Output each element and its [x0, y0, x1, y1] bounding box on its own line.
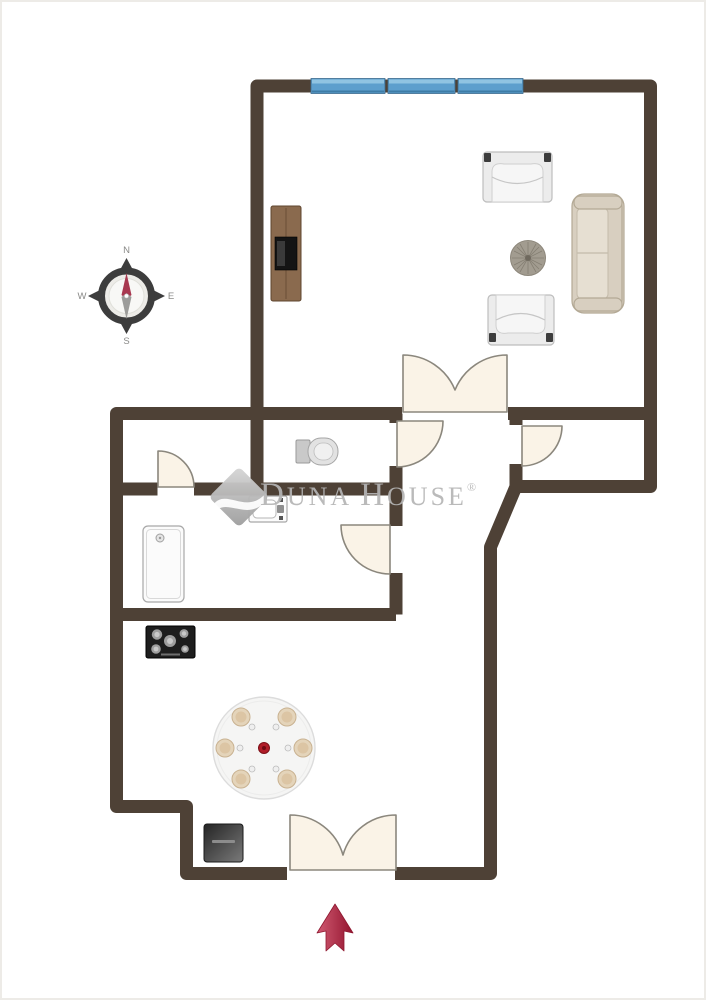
entrance-appliance — [204, 824, 243, 862]
window-shade — [312, 91, 384, 93]
tv-cabinet — [271, 206, 301, 301]
bathroom-door-icon — [341, 525, 390, 574]
tv-screen-glare — [277, 241, 285, 266]
dining-table — [213, 697, 315, 799]
entrance-arrow-icon — [317, 904, 353, 951]
sofa-arm — [574, 298, 622, 311]
window-shade — [389, 91, 454, 93]
watermark-brand-text: DUNAHOUSE® — [260, 477, 479, 513]
tap-knob — [279, 516, 283, 520]
corridor-door-icon — [522, 426, 562, 466]
window-highlight — [389, 80, 454, 84]
cooktop — [146, 626, 195, 658]
compass-label-e: E — [168, 291, 174, 302]
compass-label-s: S — [123, 336, 129, 347]
floor-plan-drawing: DUNAHOUSE® N S E W — [0, 0, 706, 1000]
living-room-double-door-icon — [403, 355, 507, 412]
floor-plan-page: DUNAHOUSE® N S E W — [0, 0, 706, 1000]
window-shade — [459, 91, 522, 93]
window-highlight — [312, 80, 384, 84]
cooktop-controls — [161, 654, 180, 656]
compass-rose-icon: N S E W — [78, 245, 175, 347]
shower-tray — [143, 526, 184, 602]
window-strip — [311, 79, 523, 94]
toilet-door-icon — [397, 421, 443, 467]
armchair-top — [483, 152, 552, 202]
sofa-arm — [574, 196, 622, 209]
pouf — [511, 241, 546, 276]
compass-label-n: N — [123, 245, 130, 256]
sofa — [572, 194, 624, 313]
window-highlight — [459, 80, 522, 84]
entrance-double-door-icon — [290, 815, 396, 870]
armchair-bottom — [488, 295, 554, 345]
storage-room-door-icon — [158, 451, 194, 487]
toilet — [296, 438, 338, 465]
compass-label-w: W — [78, 291, 87, 302]
